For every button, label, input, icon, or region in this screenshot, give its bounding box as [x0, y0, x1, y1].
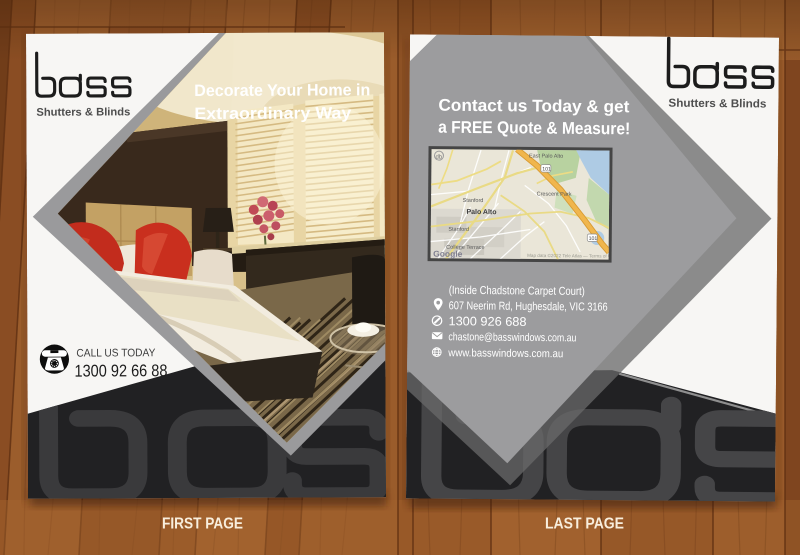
svg-text:(Inside Chadstone Carpet Court: (Inside Chadstone Carpet Court): [449, 285, 585, 298]
svg-text:www.basswindows.com.au: www.basswindows.com.au: [447, 347, 563, 360]
svg-text:Extraordinary Way: Extraordinary Way: [194, 104, 352, 123]
svg-text:Crescent Park: Crescent Park: [537, 192, 572, 198]
svg-text:1300 926 688: 1300 926 688: [448, 314, 526, 329]
svg-text:Map data ©2022 Tele Atlas — Te: Map data ©2022 Tele Atlas — Terms of Use: [527, 252, 617, 259]
svg-text:CALL US TODAY: CALL US TODAY: [76, 347, 156, 359]
svg-text:East Palo Alto: East Palo Alto: [529, 153, 563, 159]
svg-text:Google: Google: [433, 249, 463, 259]
svg-text:Contact us Today & get: Contact us Today & get: [438, 96, 629, 117]
svg-text:Shutters & Blinds: Shutters & Blinds: [668, 98, 766, 111]
svg-text:101: 101: [542, 167, 551, 173]
svg-text:db: db: [435, 155, 442, 161]
svg-text:607 Neerim Rd, Hughesdale, VIC: 607 Neerim Rd, Hughesdale, VIC 3166: [449, 300, 608, 313]
svg-text:Stanford: Stanford: [463, 198, 484, 204]
svg-text:a FREE Quote & Measure!: a FREE Quote & Measure!: [438, 118, 630, 139]
svg-text:101: 101: [589, 236, 598, 242]
svg-text:LAST PAGE: LAST PAGE: [545, 516, 624, 533]
svg-text:chastone@basswindows.com.au: chastone@basswindows.com.au: [448, 331, 576, 344]
svg-text:1300 92 66 88: 1300 92 66 88: [74, 361, 167, 380]
svg-text:Shutters & Blinds: Shutters & Blinds: [36, 106, 130, 118]
svg-text:Palo Alto: Palo Alto: [466, 209, 496, 216]
svg-text:Stanford: Stanford: [448, 227, 469, 233]
svg-text:Decorate Your Home in: Decorate Your Home in: [194, 81, 370, 100]
svg-text:FIRST PAGE: FIRST PAGE: [162, 516, 243, 533]
